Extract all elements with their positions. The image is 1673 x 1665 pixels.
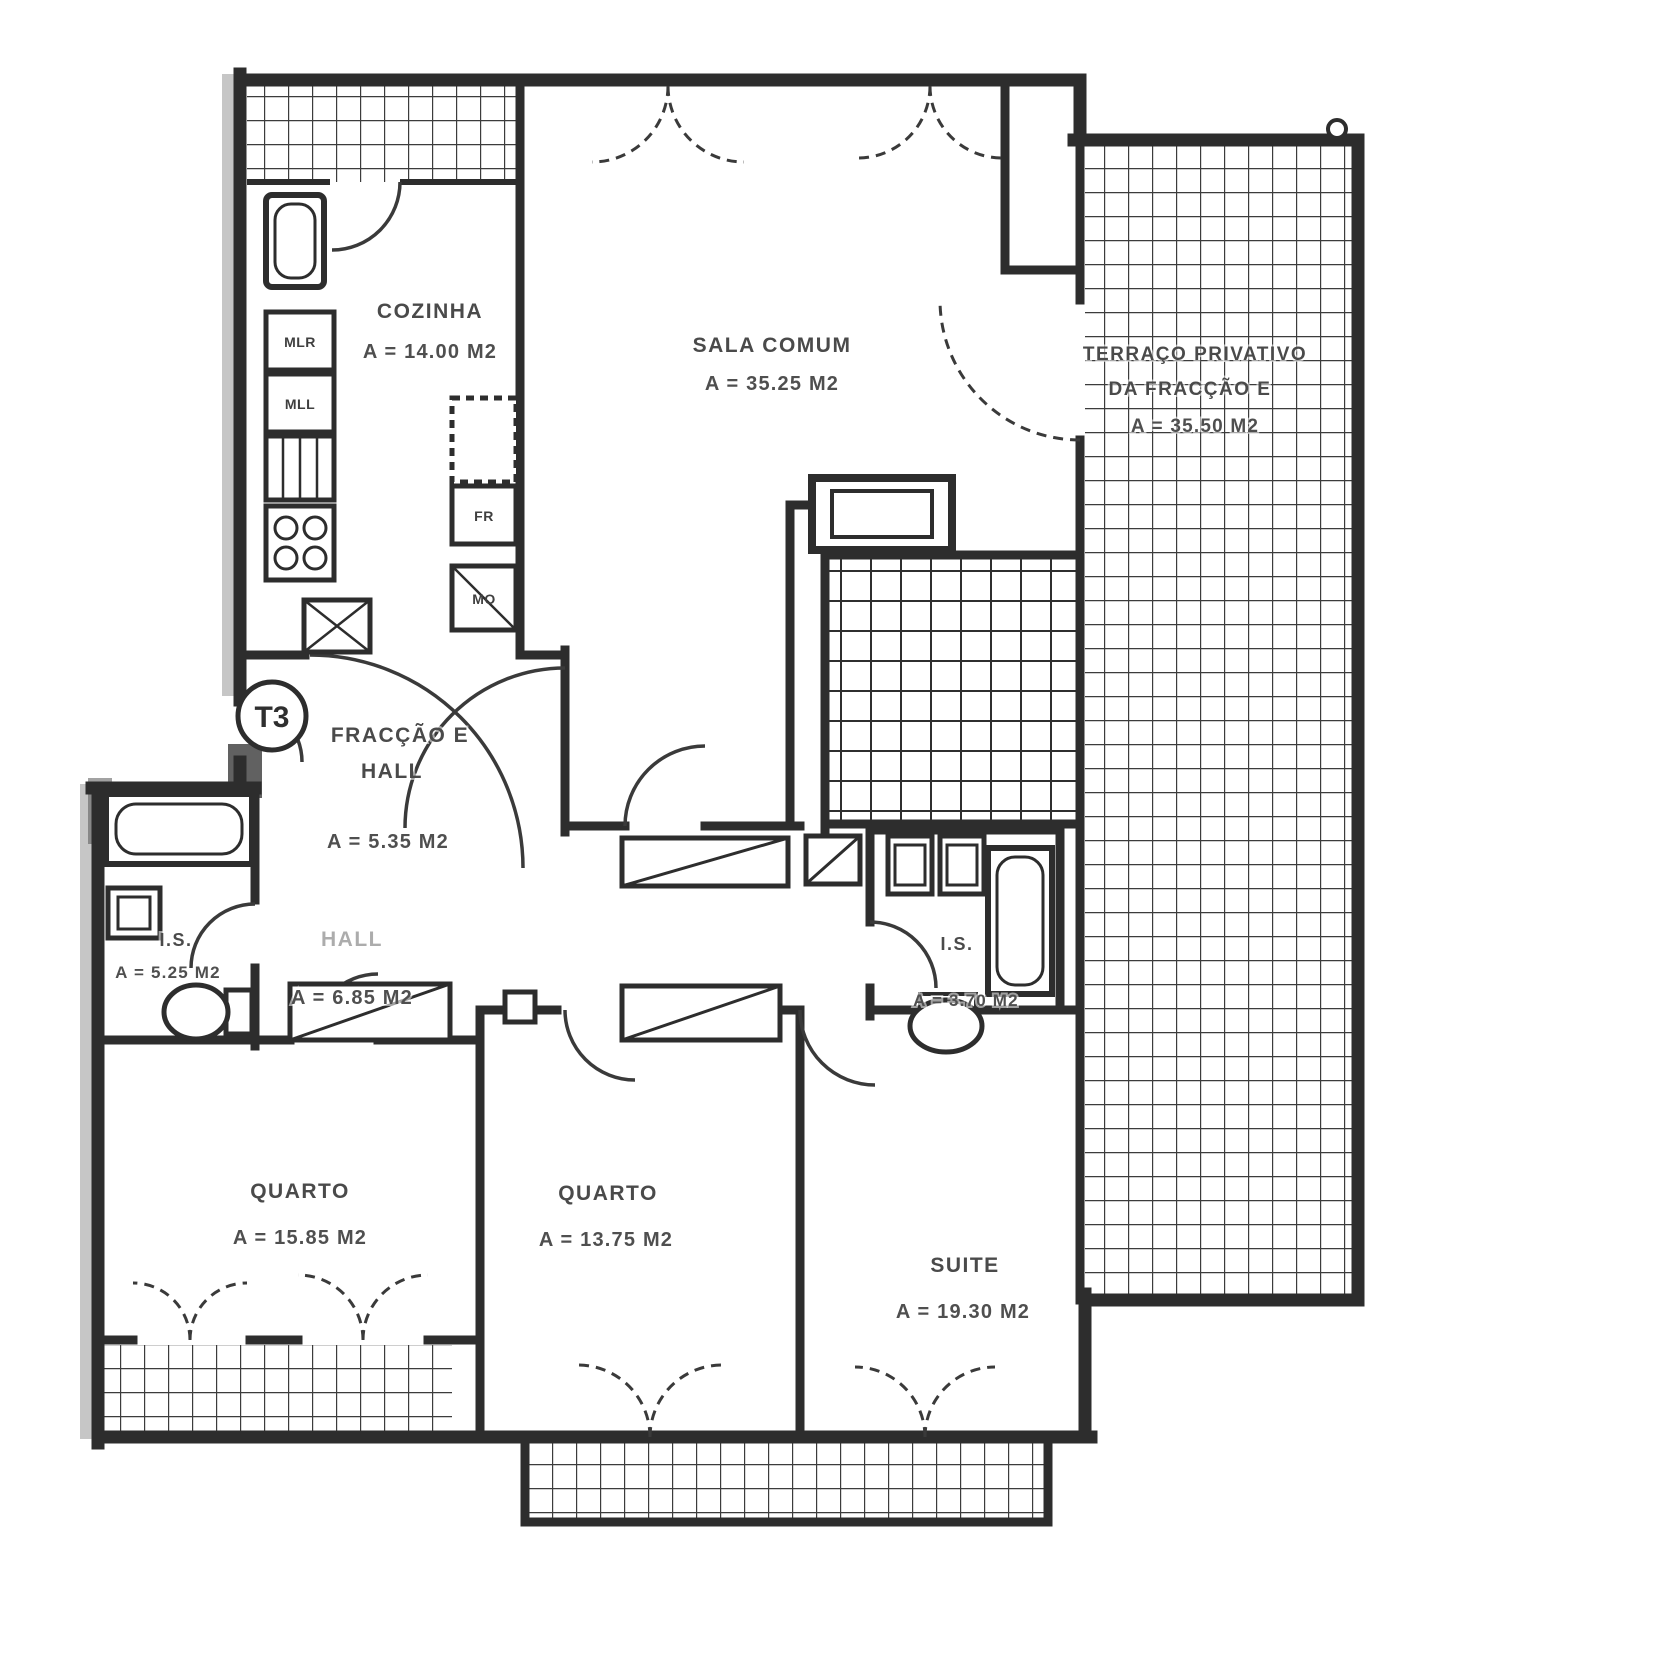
bathroom-left-fixtures xyxy=(106,794,252,1039)
area-quarto-1: A = 15.85 M2 xyxy=(233,1227,367,1249)
label-terraco-2: DA FRACÇÃO E xyxy=(1109,378,1272,400)
pier xyxy=(505,992,535,1022)
tiled-areas xyxy=(102,86,1355,1523)
label-mo: MO xyxy=(472,591,496,607)
area-hall-entrada: A = 5.35 M2 xyxy=(327,831,449,853)
label-fraccao: FRACÇÃO E xyxy=(331,724,469,747)
area-is-esquerda: A = 5.25 M2 xyxy=(115,963,221,982)
kitchen-fixtures xyxy=(266,195,516,652)
area-terraco: A = 35.50 M2 xyxy=(1131,416,1259,437)
label-cozinha: COZINHA xyxy=(377,300,483,323)
label-is-esquerda: I.S. xyxy=(159,930,192,950)
label-hall-entrada: HALL xyxy=(361,760,423,783)
label-suite: SUITE xyxy=(930,1254,999,1277)
label-quarto-1: QUARTO xyxy=(250,1180,350,1203)
toilet xyxy=(164,985,228,1039)
terrace-tiles xyxy=(1085,145,1355,1297)
label-quarto-2: QUARTO xyxy=(558,1182,658,1205)
tall-cabinet xyxy=(452,398,516,482)
area-hall-interior: A = 6.85 M2 xyxy=(291,987,413,1009)
label-fr: FR xyxy=(474,508,494,524)
corner-marker xyxy=(1328,120,1346,138)
label-mlr: MLR xyxy=(284,334,316,350)
label-is-suite: I.S. xyxy=(940,934,973,954)
floor-plan-scan: T3 COZINHA A = 14.00 M2 SALA COMUM A = 3… xyxy=(0,0,1673,1665)
label-terraco-1: TERRAÇO PRIVATIVO xyxy=(1083,344,1307,365)
unit-badge-text: T3 xyxy=(254,701,289,734)
balcony-top-left-tiles xyxy=(247,86,517,182)
area-cozinha: A = 14.00 M2 xyxy=(363,341,497,363)
area-is-suite: A = 3.70 M2 xyxy=(913,991,1019,1010)
floor-plan-drawing: T3 COZINHA A = 14.00 M2 SALA COMUM A = 3… xyxy=(0,0,1673,1665)
unit-badge: T3 xyxy=(238,682,306,750)
label-hall-interior: HALL xyxy=(321,928,383,951)
area-suite: A = 19.30 M2 xyxy=(896,1301,1030,1323)
hob xyxy=(266,506,334,580)
patio-tiles xyxy=(829,559,1077,825)
balcony-bottom-center-tiles xyxy=(529,1441,1045,1523)
area-quarto-2: A = 13.75 M2 xyxy=(539,1229,673,1251)
label-mll: MLL xyxy=(285,396,315,412)
label-sala-comum: SALA COMUM xyxy=(693,334,852,357)
area-sala-comum: A = 35.25 M2 xyxy=(705,373,839,395)
balcony-bottom-left-tiles xyxy=(102,1345,452,1435)
